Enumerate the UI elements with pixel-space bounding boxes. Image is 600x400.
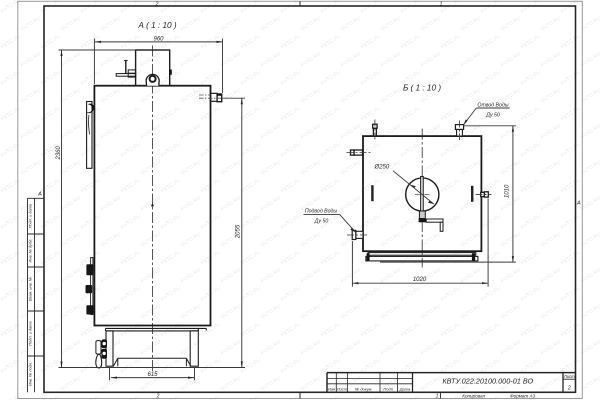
svg-text:2: 2	[155, 1, 159, 7]
svg-text:Лист: Лист	[563, 374, 575, 379]
svg-text:2: 2	[567, 386, 571, 392]
svg-text:Лист: Лист	[336, 387, 348, 392]
svg-text:Дата: Дата	[399, 387, 411, 392]
svg-text:960: 960	[153, 37, 164, 43]
svg-text:Отвод Воды: Отвод Воды	[477, 102, 508, 108]
svg-text:Изм: Изм	[328, 387, 336, 392]
svg-text:А: А	[576, 201, 581, 207]
svg-text:КВТУ.022.20100.000-01 ВО: КВТУ.022.20100.000-01 ВО	[442, 377, 533, 386]
svg-text:1: 1	[440, 1, 443, 7]
svg-text:2: 2	[156, 394, 160, 400]
svg-text:Б ( 1 : 10 ): Б ( 1 : 10 )	[403, 84, 441, 93]
svg-text:2360: 2360	[56, 145, 62, 160]
svg-text:2055: 2055	[236, 224, 242, 239]
svg-text:1020: 1020	[413, 277, 427, 283]
svg-text:615: 615	[147, 372, 158, 378]
svg-text:Подп. и дата: Подп. и дата	[28, 203, 33, 228]
svg-text:1010: 1010	[504, 184, 510, 198]
svg-text:1: 1	[436, 394, 439, 400]
svg-text:Подвод Воды: Подвод Воды	[305, 209, 338, 215]
svg-text:Формат А3: Формат А3	[510, 394, 536, 399]
svg-text:Инв. № дубл.: Инв. № дубл.	[28, 239, 33, 263]
svg-text:Ду 50: Ду 50	[485, 113, 500, 119]
svg-text:Подп.: Подп.	[383, 387, 394, 392]
svg-text:А ( 1 : 10 ): А ( 1 : 10 )	[137, 21, 176, 30]
svg-text:Ø250: Ø250	[374, 164, 390, 170]
svg-text:А: А	[37, 192, 42, 198]
svg-text:Инв. № подл.: Инв. № подл.	[28, 362, 33, 386]
svg-text:Копировал: Копировал	[462, 394, 485, 399]
svg-text:Ду 50: Ду 50	[314, 219, 329, 225]
svg-text:Подп. и дата: Подп. и дата	[28, 320, 33, 345]
svg-text:Взам. инв. №: Взам. инв. №	[28, 276, 33, 301]
svg-text:№ докум.: № докум.	[355, 387, 373, 392]
